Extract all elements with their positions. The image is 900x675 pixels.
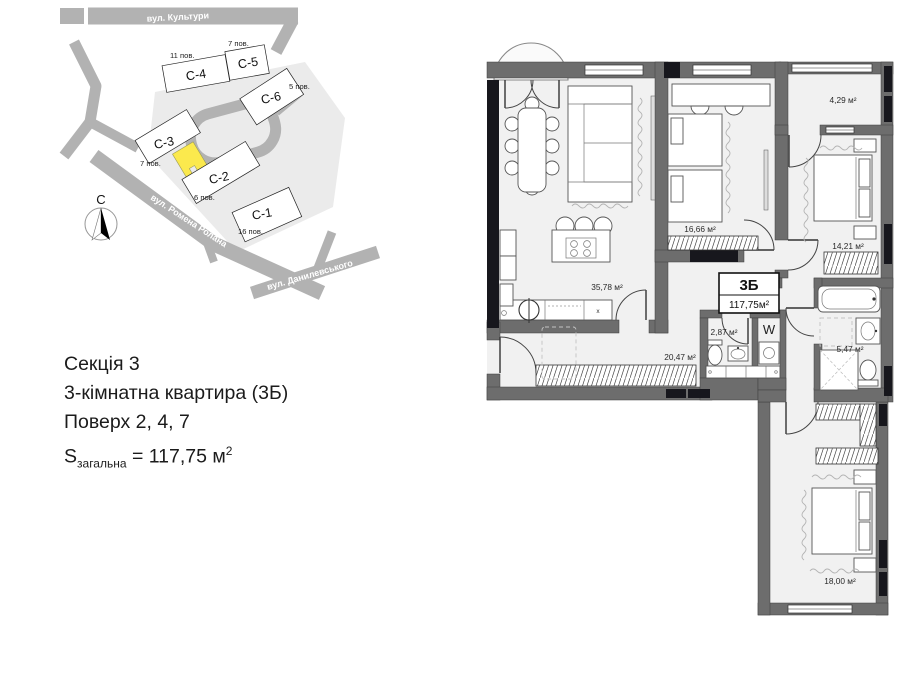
bedroom3-wardrobe-a (816, 404, 860, 420)
building-c3-floors: 7 пов. (140, 159, 161, 168)
room-area-label-living: 35,78 м² (591, 282, 623, 292)
tv-console (651, 96, 655, 200)
shower (820, 350, 858, 390)
area-superscript: 2 (226, 444, 233, 458)
building-c5-floors: 7 пов. (228, 39, 249, 48)
apartment-type: 3-кімнатна квартира (3Б) (64, 379, 288, 408)
wc-toilet (708, 340, 722, 365)
washer-label: W (763, 322, 776, 337)
compass-north-label: С (96, 192, 105, 207)
total-area-line: Sзагальна = 117,75 м2 (64, 437, 288, 478)
room-area-label-wc: 2,87 м² (711, 327, 738, 337)
room-area-label-balcony: 4,29 м² (830, 95, 857, 105)
room-area-label-bedroom1: 16,66 м² (684, 224, 716, 234)
room-area-label-bedroom2: 14,21 м² (832, 241, 864, 251)
room-area-label-hallway: 20,47 м² (664, 352, 696, 362)
sofa (568, 86, 632, 202)
floor-plan: x (487, 43, 893, 615)
floors-line: Поверх 2, 4, 7 (64, 408, 288, 437)
area-subscript: загальна (77, 456, 127, 470)
bedroom3-wardrobe-c (816, 448, 878, 464)
unit-label-box: 3Б 117,75м² (719, 273, 779, 313)
room-area-label-bedroom3: 18,00 м² (824, 576, 856, 586)
bedroom1-wardrobe (668, 236, 758, 250)
building-c6-floors: 5 пов. (289, 82, 310, 91)
compass-needle-east (101, 208, 110, 240)
section-title: Секція 3 (64, 350, 288, 379)
room-area-label-bathroom: 5,47 м² (837, 344, 864, 354)
wc-cabinet (706, 366, 780, 378)
page: C-4 C-5 C-6 C-3 C-2 C-1 11 пов. 7 пов. 5… (0, 0, 900, 675)
wc-sink (728, 346, 748, 361)
scene-svg: C-4 C-5 C-6 C-3 C-2 C-1 11 пов. 7 пов. 5… (0, 0, 900, 675)
bedroom3-wardrobe-b (860, 404, 876, 446)
building-c4-floors: 11 пов. (170, 51, 194, 60)
unit-area: 117,75м² (729, 300, 770, 311)
area-symbol: S (64, 446, 77, 468)
building-c1-floors: 16 пов. (238, 227, 263, 236)
hallway-wardrobe (536, 365, 696, 386)
kitchen-counter: x (500, 298, 612, 323)
building-c2-floors: 6 пов. (194, 193, 215, 202)
apartment-info: Секція 3 3-кімнатна квартира (3Б) Поверх… (64, 350, 288, 478)
site-map: C-4 C-5 C-6 C-3 C-2 C-1 11 пов. 7 пов. 5… (60, 10, 378, 293)
compass-needle-west (92, 208, 101, 240)
bedroom1-tv (764, 150, 768, 210)
washing-machine (759, 342, 779, 364)
unit-code: 3Б (739, 277, 758, 294)
compass: С (85, 192, 117, 240)
wc-fixtures (706, 340, 780, 378)
kitchen-island (552, 217, 612, 262)
area-value: = 117,75 м (127, 446, 226, 468)
bedroom2-wardrobe (824, 252, 878, 274)
bath-sink (856, 318, 880, 344)
bathtub (818, 286, 880, 312)
